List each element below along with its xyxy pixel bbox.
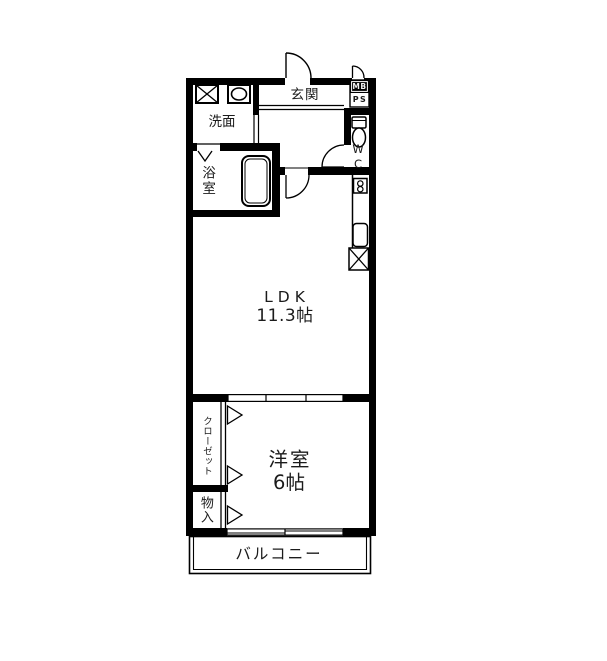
- bath-folding-door-icon: [198, 151, 212, 161]
- mb-door-arc: [353, 66, 365, 78]
- room-label-closet: クローゼット: [201, 416, 211, 476]
- room-label-wc: WC: [352, 142, 364, 172]
- room-size-yoshitsu: 6帖: [273, 473, 305, 493]
- wc-door-arc: [322, 145, 344, 167]
- sliding-partition: [228, 395, 343, 402]
- label-mb: MB: [352, 83, 366, 91]
- room-label-yoshitsu: 洋室: [268, 450, 311, 470]
- senmen-door: [254, 115, 259, 143]
- room-size-ldk: 11.3帖: [256, 308, 313, 326]
- refrigerator-icon: [349, 248, 369, 270]
- ldk-door-arc: [286, 175, 309, 198]
- balcony-window: [227, 529, 343, 535]
- room-label-senmen: 洗面: [209, 115, 236, 129]
- washing-machine-icon: [196, 85, 218, 103]
- vanity-sink-icon: [228, 85, 250, 103]
- room-label-ldk: LDK: [264, 289, 310, 305]
- entry-door-arc: [286, 53, 311, 78]
- bathtub-icon: [242, 156, 270, 206]
- room-label-genkan: 玄関: [291, 88, 320, 102]
- stove-icon: [354, 179, 368, 194]
- closet-door-triangles: [228, 406, 243, 524]
- closet-door-lines: [221, 402, 226, 528]
- floorplan: 玄関 洗面 浴室 WC MB PS LDK 11.3帖 洋室 6帖 クローゼット…: [0, 0, 607, 661]
- room-label-monoire: 物入: [198, 496, 212, 524]
- room-label-bathroom: 浴室: [200, 166, 214, 197]
- label-ps: PS: [353, 96, 368, 104]
- genkan-step: [259, 106, 344, 110]
- room-label-balcony: バルコニー: [235, 546, 322, 562]
- kitchen-sink-icon: [353, 224, 368, 247]
